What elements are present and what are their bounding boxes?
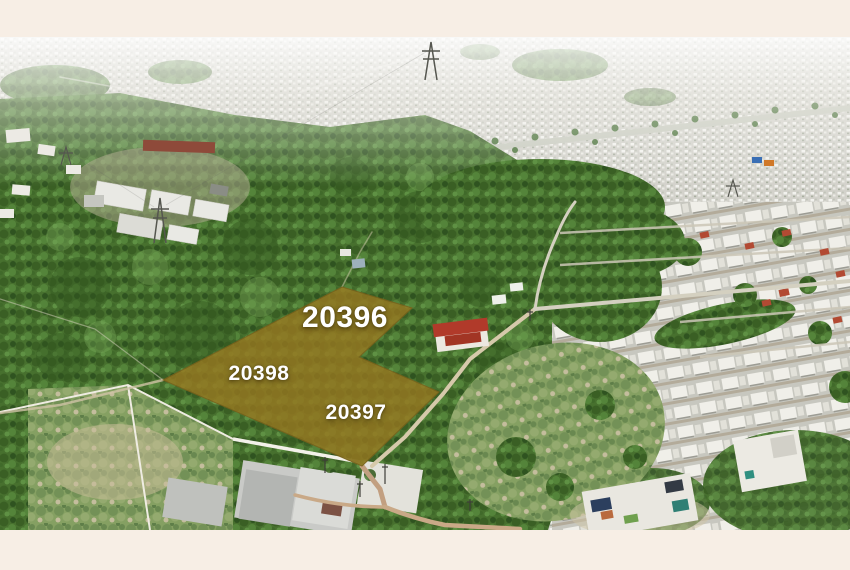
photo-frame: 20396 20398 20397 [0, 0, 850, 570]
parcel-label-20397: 20397 [326, 401, 387, 425]
aerial-scene [0, 37, 850, 530]
parcel-label-20398: 20398 [229, 362, 290, 386]
aerial-photo [0, 37, 850, 530]
parcel-label-20396: 20396 [302, 301, 388, 335]
